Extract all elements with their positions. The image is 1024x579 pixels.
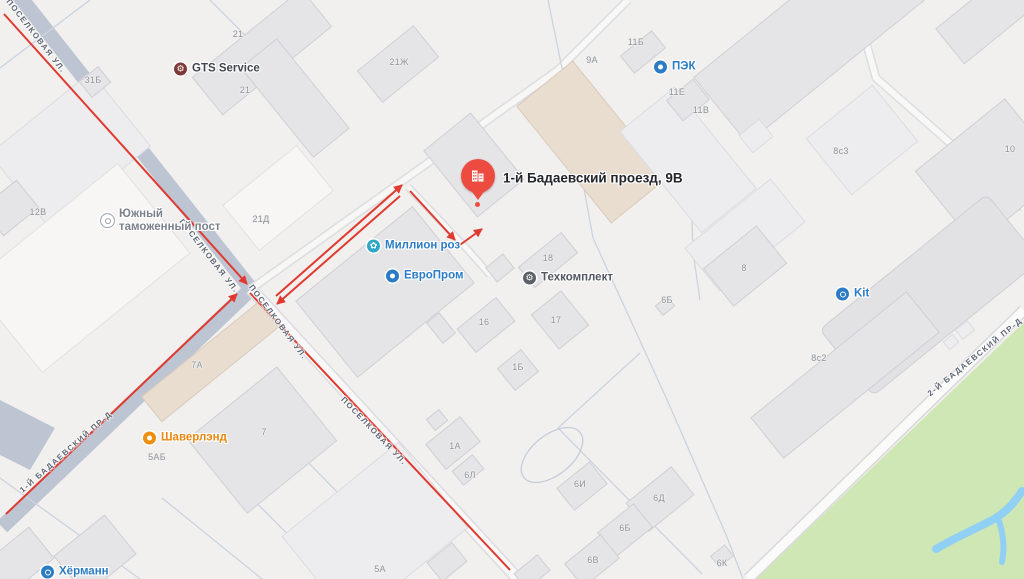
poi-shaverlend[interactable]: Шаверлэнд [143,432,227,445]
building-number-label: 31Б [85,75,102,85]
wrench-icon: ⚙ [174,63,187,76]
building-number-label: 10 [1005,144,1016,154]
building-number-label: 11Е [669,87,685,97]
poi-label: Миллион роз [385,240,460,253]
building-number-label: 6И [574,479,586,489]
logo-icon [654,61,667,74]
ring-icon [836,288,849,301]
building-number-label: 17 [551,315,562,325]
pin-tail [470,189,486,200]
building-number-label: 7 [261,427,266,437]
street-name-label: Поселковая ул. [247,283,309,361]
poi-label: ПЭК [672,61,695,74]
pin-anchor-dot [475,202,480,207]
poi-label: ЕвроПром [404,270,463,283]
building-number-label: 8с3 [833,146,848,156]
poi-label: Южный таможенный пост [119,208,220,234]
poi-label: Шаверлэнд [161,432,227,445]
poi-gts-service[interactable]: ⚙GTS Service [174,63,260,76]
building-number-label: 11В [693,105,709,115]
poi-label: GTS Service [192,63,260,76]
poi-million-roz[interactable]: ✿Миллион роз [367,240,460,253]
building-number-label: 5АБ [148,452,166,462]
destination-address-label: 1-й Бадаевский проезд, 9В [503,171,683,186]
street-name-label: 2-й Бадаевский пр-д [926,316,1024,398]
flower-icon: ✿ [367,240,380,253]
poi-hermann[interactable]: Хёрманн [41,566,109,579]
building-number-label: 1А [449,441,461,451]
poi-tehkomplekt[interactable]: ⚙Техкомплект [523,272,613,285]
poi-pek[interactable]: ПЭК [654,61,695,74]
building-number-label: 6К [717,558,728,568]
poi-customs-post[interactable]: Южный таможенный пост [101,208,220,234]
food-icon [143,432,156,445]
gear-icon: ⚙ [523,272,536,285]
building-number-label: 12В [30,207,47,217]
building-number-label: 21 [240,85,251,95]
building-number-label: 21Ж [389,57,408,67]
poi-label: Техкомплект [541,272,613,285]
label-layer: 2121Ж2131Б12В21Д9А11Б11Е11В8с31086Б8с218… [0,0,1024,579]
building-number-label: 1Б [512,362,524,372]
map-canvas[interactable]: 2121Ж2131Б12В21Д9А11Б11Е11В8с31086Б8с218… [0,0,1024,579]
building-number-label: 18 [543,253,554,263]
building-number-label: 5А [374,564,386,574]
building-number-label: 6Л [464,470,476,480]
building-number-label: 6Б [619,523,631,533]
poi-label: Kit [854,288,869,301]
building-number-label: 6Б [661,295,673,305]
poi-evroprom[interactable]: ЕвроПром [386,270,463,283]
building-number-label: 11Б [628,37,644,47]
building-number-label: 9А [586,55,598,65]
customs-icon [101,215,114,228]
building-number-label: 7А [191,360,203,370]
building-icon [461,159,495,193]
street-name-label: Поселковая ул. [339,395,409,467]
street-name-label: 1-й Бадаевский пр-д [18,409,114,494]
ring-icon [41,566,54,579]
poi-label: Хёрманн [59,566,109,579]
building-number-label: 8с2 [811,353,826,363]
building-number-label: 21 [233,29,244,39]
destination-pin[interactable] [461,159,495,193]
building-number-label: 6В [587,555,599,565]
building-number-label: 16 [479,317,490,327]
car-icon [386,270,399,283]
street-name-label: Поселковая ул. [4,0,67,75]
building-number-label: 8 [741,263,746,273]
building-number-label: 21Д [252,214,269,224]
building-number-label: 6Д [653,493,665,503]
poi-kit[interactable]: Kit [836,288,869,301]
